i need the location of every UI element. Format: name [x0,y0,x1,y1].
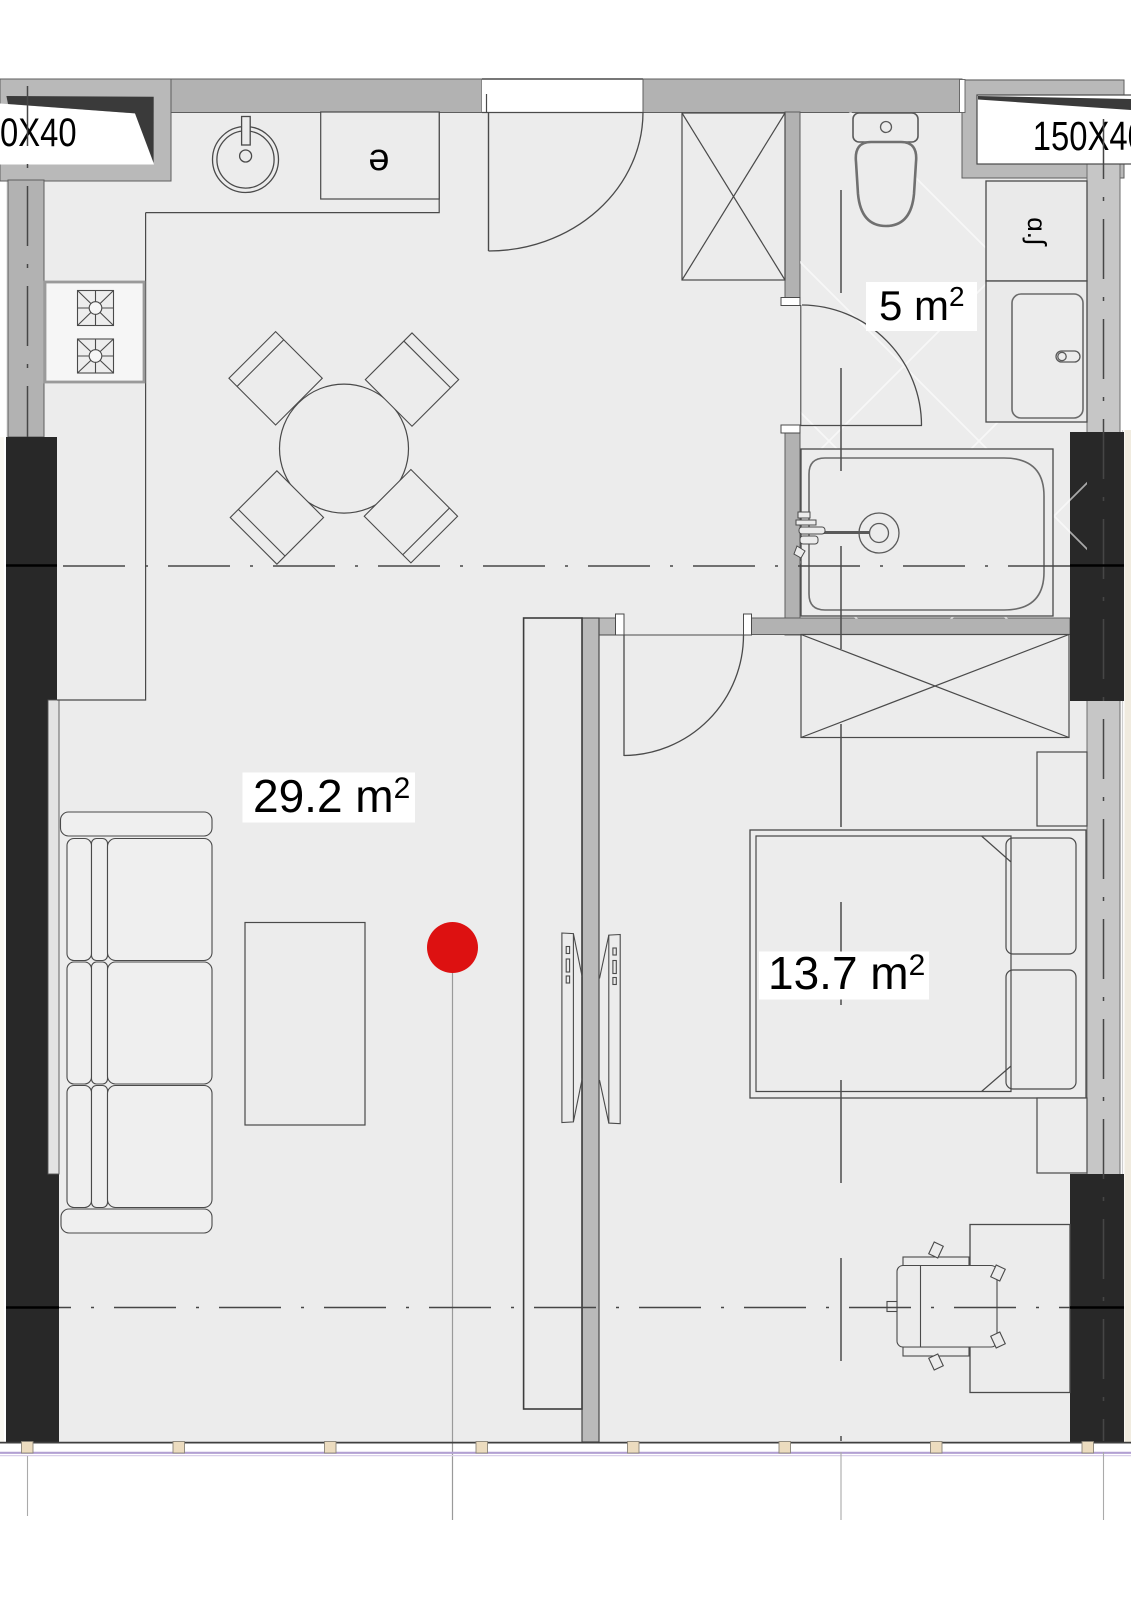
svg-text:13.7 m2: 13.7 m2 [768,947,925,999]
svg-text:29.2 m2: 29.2 m2 [253,770,410,822]
svg-text:ɑ.ʃ: ɑ.ʃ [1022,217,1052,247]
svg-text:150X40: 150X40 [0,110,77,155]
svg-text:ə: ə [368,137,389,179]
svg-text:150X40: 150X40 [1033,112,1131,158]
